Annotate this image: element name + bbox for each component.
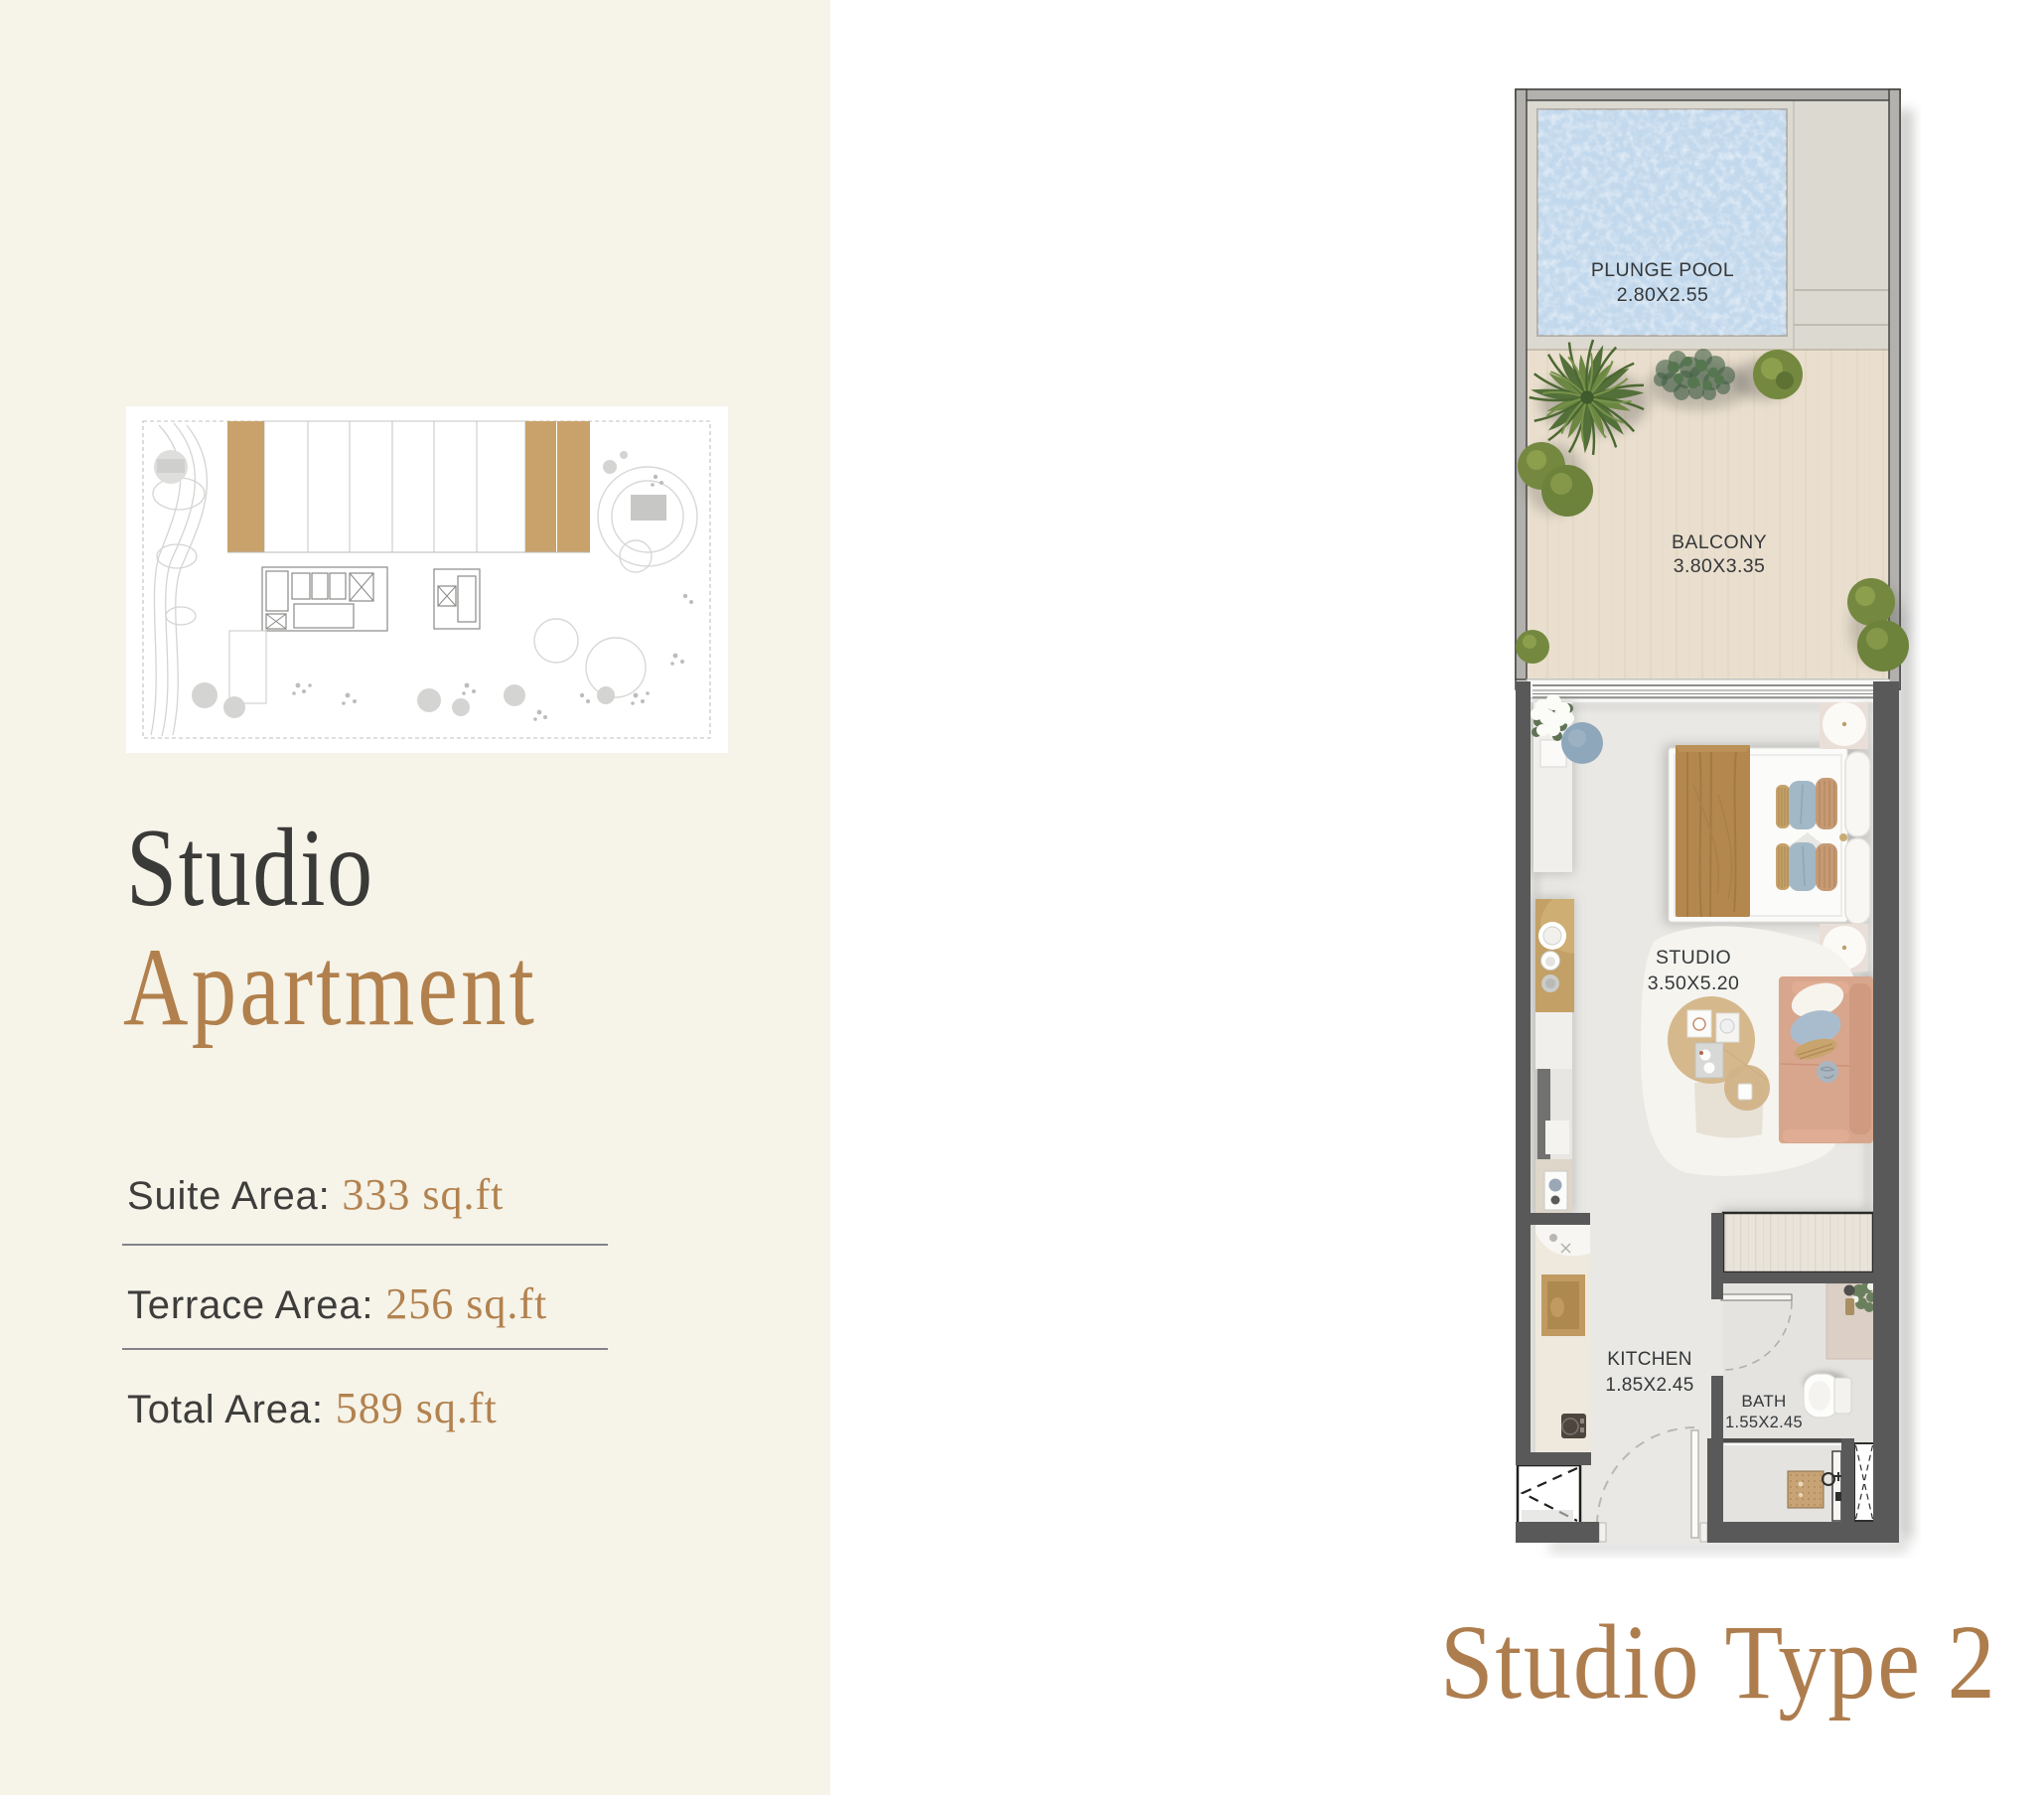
svg-text:3.80X3.35: 3.80X3.35 (1674, 555, 1766, 577)
svg-text:BALCONY: BALCONY (1672, 531, 1767, 553)
svg-text:KITCHEN: KITCHEN (1607, 1349, 1692, 1370)
svg-text:STUDIO: STUDIO (1656, 947, 1731, 969)
svg-text:1.55X2.45: 1.55X2.45 (1725, 1414, 1803, 1431)
svg-text:2.80X2.55: 2.80X2.55 (1617, 284, 1709, 306)
svg-text:3.50X5.20: 3.50X5.20 (1648, 972, 1740, 994)
svg-text:BATH: BATH (1741, 1392, 1786, 1411)
svg-text:1.85X2.45: 1.85X2.45 (1605, 1375, 1693, 1396)
svg-text:PLUNGE POOL: PLUNGE POOL (1591, 259, 1734, 281)
